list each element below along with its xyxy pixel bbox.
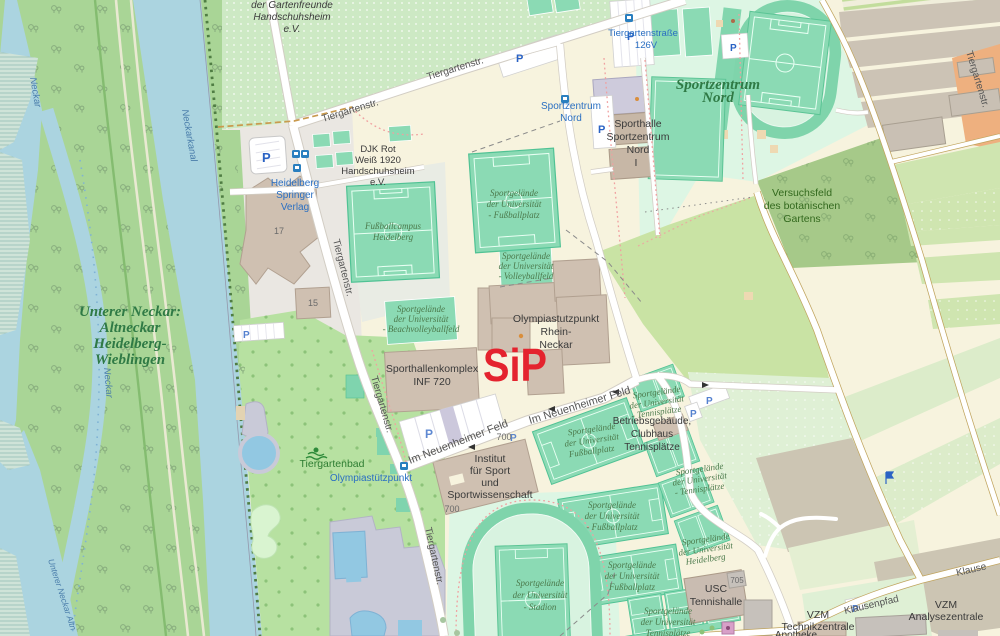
- svg-text:17: 17: [274, 226, 284, 236]
- svg-text:- Fußballplatz: - Fußballplatz: [586, 522, 638, 532]
- svg-text:P: P: [243, 330, 250, 341]
- svg-text:SiP: SiP: [483, 339, 547, 391]
- svg-text:Clubhaus: Clubhaus: [631, 429, 673, 440]
- svg-text:Sportgelände: Sportgelände: [588, 500, 636, 510]
- svg-text:Springer: Springer: [276, 190, 314, 201]
- svg-text:Heidelberg-: Heidelberg-: [92, 336, 166, 352]
- svg-text:der Universität: der Universität: [585, 511, 640, 521]
- svg-text:und: und: [481, 477, 499, 489]
- svg-text:Sporthalle: Sporthalle: [614, 118, 661, 130]
- svg-text:P: P: [425, 427, 433, 441]
- svg-text:der Universität: der Universität: [487, 199, 542, 209]
- svg-text:Tiergartenbad: Tiergartenbad: [300, 458, 365, 470]
- svg-text:der Universität: der Universität: [499, 261, 554, 271]
- svg-text:- Fußballplatz: - Fußballplatz: [488, 210, 540, 220]
- svg-text:Wieblingen: Wieblingen: [95, 352, 165, 368]
- svg-text:Altneckar: Altneckar: [99, 320, 161, 336]
- svg-text:I: I: [635, 157, 638, 169]
- svg-text:der Universität: der Universität: [513, 590, 568, 600]
- svg-text:Sportwissenschaft: Sportwissenschaft: [447, 489, 532, 501]
- svg-text:126V: 126V: [635, 40, 658, 51]
- svg-text:Unterer Neckar:: Unterer Neckar:: [79, 304, 181, 320]
- svg-text:Heidelberg: Heidelberg: [372, 232, 414, 242]
- svg-text:- Stadion: - Stadion: [524, 602, 557, 612]
- svg-text:P: P: [516, 53, 523, 65]
- svg-text:700: 700: [496, 432, 511, 442]
- svg-text:Gartens: Gartens: [783, 213, 820, 225]
- svg-text:e.V.: e.V.: [283, 24, 300, 35]
- svg-text:Sportgelände: Sportgelände: [502, 251, 550, 261]
- svg-text:Tiergartenstraße: Tiergartenstraße: [608, 28, 678, 39]
- svg-text:der Universität: der Universität: [605, 571, 660, 581]
- svg-text:der Gartenfreunde: der Gartenfreunde: [251, 0, 333, 11]
- svg-text:P: P: [262, 150, 271, 165]
- svg-text:700: 700: [444, 504, 459, 514]
- svg-text:Sportgelände: Sportgelände: [397, 304, 445, 314]
- svg-text:e.V.: e.V.: [370, 177, 386, 188]
- svg-text:Analysezentrale: Analysezentrale: [909, 611, 984, 623]
- svg-text:für Sport: für Sport: [470, 465, 510, 477]
- svg-text:Fußballplatz: Fußballplatz: [608, 582, 655, 592]
- svg-text:P: P: [730, 43, 737, 54]
- svg-text:Institut: Institut: [475, 453, 506, 465]
- svg-text:des botanischen: des botanischen: [764, 200, 841, 212]
- svg-text:Neckar: Neckar: [539, 339, 573, 351]
- svg-text:Nord: Nord: [701, 90, 734, 106]
- svg-text:705: 705: [730, 576, 744, 585]
- svg-text:15: 15: [308, 298, 318, 308]
- svg-text:- Volleyballfeld: - Volleyballfeld: [499, 271, 554, 281]
- svg-text:Weiß 1920: Weiß 1920: [355, 155, 401, 166]
- svg-text:Rhein-: Rhein-: [541, 326, 572, 338]
- svg-text:P: P: [706, 396, 713, 407]
- svg-text:VZM: VZM: [807, 609, 829, 621]
- svg-text:Handschuhsheim: Handschuhsheim: [253, 12, 330, 23]
- svg-text:Nord: Nord: [560, 113, 582, 124]
- svg-text:Sportzentrum: Sportzentrum: [606, 131, 669, 143]
- svg-text:USC: USC: [705, 583, 728, 595]
- svg-text:Sportgelände: Sportgelände: [516, 578, 564, 588]
- svg-text:Olympiastützpunkt: Olympiastützpunkt: [330, 473, 412, 484]
- svg-text:Tennisplätze: Tennisplätze: [624, 442, 680, 453]
- svg-text:Sportzentrum: Sportzentrum: [541, 101, 601, 112]
- svg-text:VZM: VZM: [935, 599, 957, 611]
- svg-text:Heidelberg: Heidelberg: [271, 178, 319, 189]
- svg-text:- Beachvolleyballfeld: - Beachvolleyballfeld: [383, 324, 460, 334]
- svg-text:der Universität: der Universität: [394, 314, 449, 324]
- svg-text:Apotheke: Apotheke: [775, 630, 818, 636]
- svg-text:INF 720: INF 720: [413, 376, 451, 388]
- svg-text:Sportgelände: Sportgelände: [644, 606, 692, 616]
- svg-text:DJK Rot: DJK Rot: [360, 144, 396, 155]
- svg-text:Sporthallenkomplex: Sporthallenkomplex: [386, 363, 479, 375]
- svg-text:Handschuhsheim: Handschuhsheim: [341, 166, 414, 177]
- svg-text:Tennisplätze: Tennisplätze: [646, 628, 691, 636]
- svg-text:Fußballcampus: Fußballcampus: [364, 221, 421, 231]
- svg-text:P: P: [598, 124, 605, 136]
- svg-text:Nord: Nord: [627, 144, 650, 156]
- svg-text:Tennishalle: Tennishalle: [690, 596, 743, 608]
- svg-text:Versuchsfeld: Versuchsfeld: [772, 187, 832, 199]
- svg-text:Sportgelände: Sportgelände: [608, 560, 656, 570]
- svg-text:Sportgelände: Sportgelände: [490, 188, 538, 198]
- svg-text:der Universität: der Universität: [641, 617, 696, 627]
- svg-text:Olympiastutzpunkt: Olympiastutzpunkt: [513, 313, 599, 325]
- svg-text:Verlag: Verlag: [281, 202, 309, 213]
